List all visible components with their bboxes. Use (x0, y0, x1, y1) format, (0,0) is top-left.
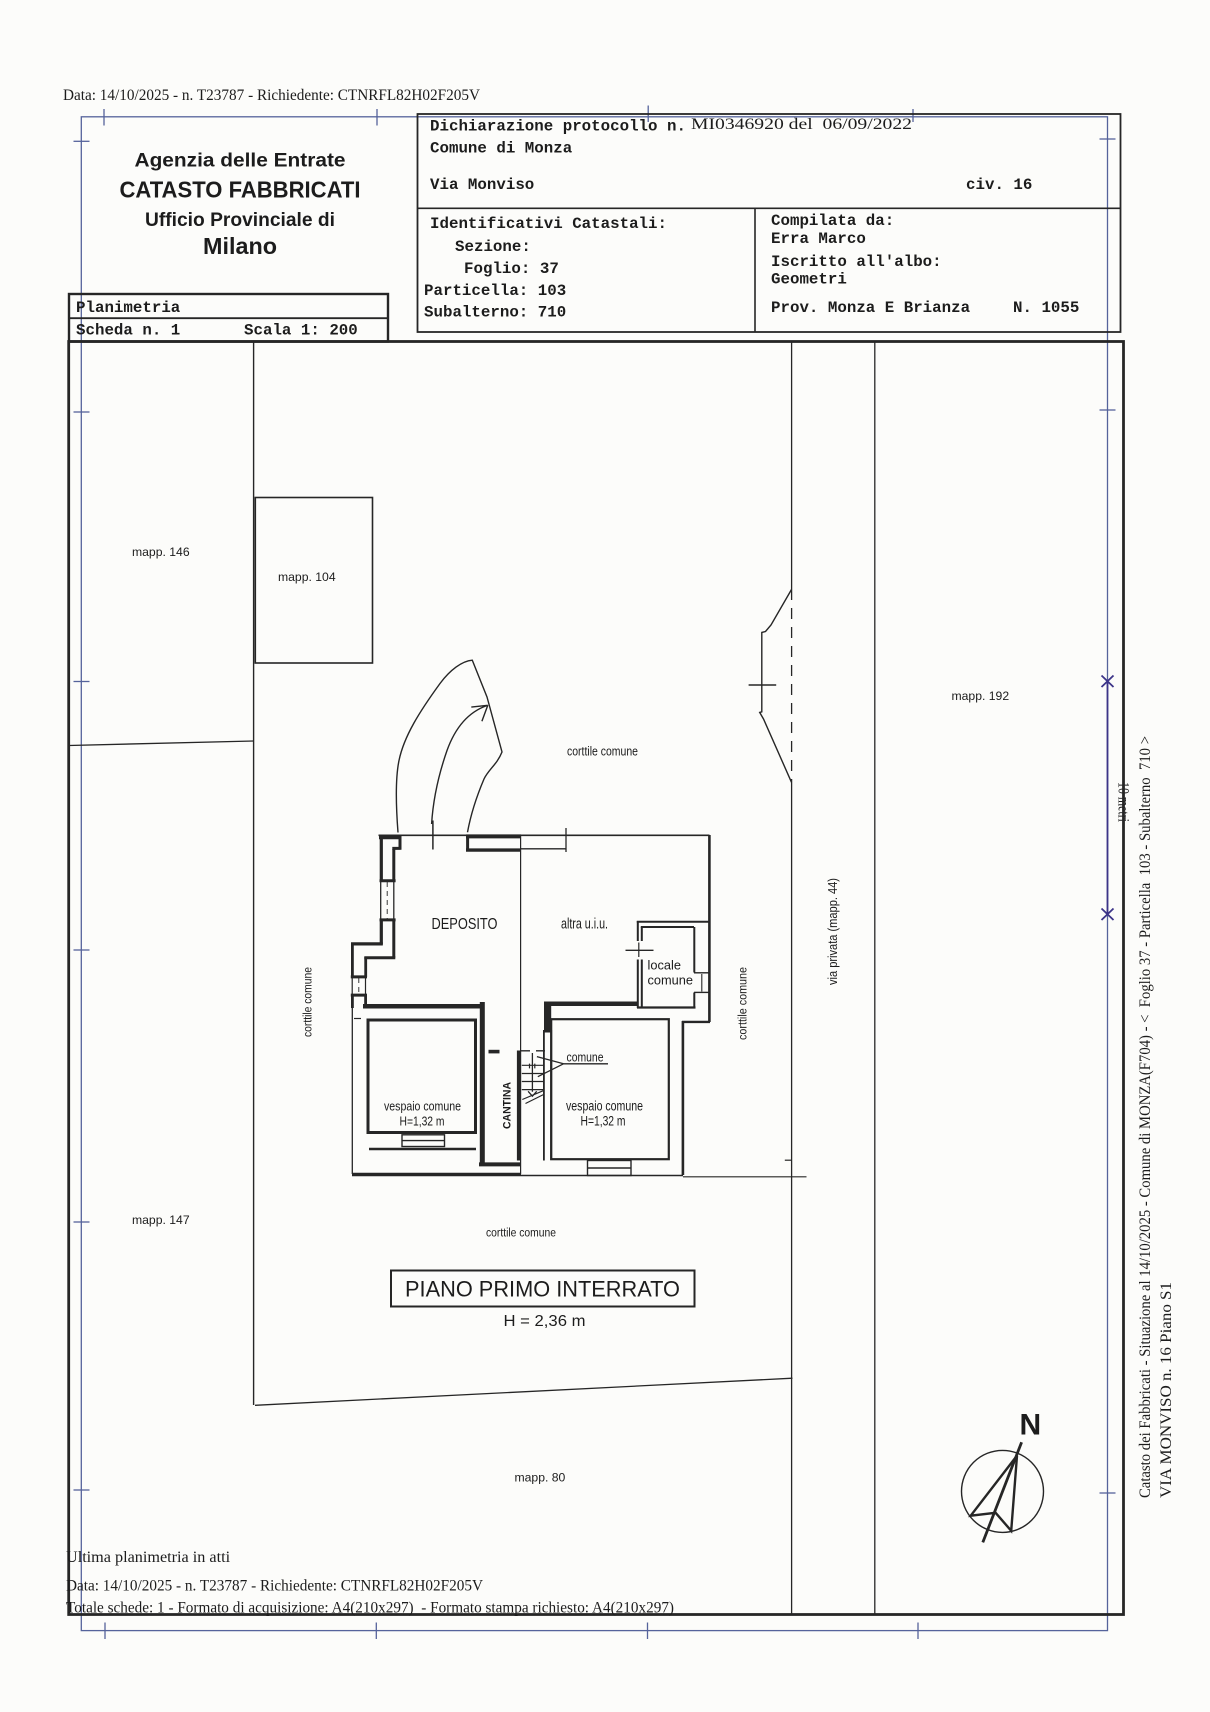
svg-text:CATASTO FABBRICATI: CATASTO FABBRICATI (120, 177, 361, 203)
svg-text:Prov. Monza E Brianza: Prov. Monza E Brianza (771, 299, 971, 317)
svg-text:Ultima planimetria in atti: Ultima planimetria in atti (66, 1548, 231, 1566)
svg-text:mapp. 80: mapp. 80 (515, 1471, 566, 1485)
svg-text:Scheda n. 1: Scheda n. 1 (76, 322, 180, 340)
svg-text:Geometri: Geometri (771, 271, 847, 289)
svg-text:mapp. 147: mapp. 147 (132, 1213, 190, 1227)
svg-text:Scala 1: 200: Scala 1: 200 (244, 322, 358, 340)
svg-text:CANTINA: CANTINA (502, 1082, 514, 1129)
svg-text:mapp. 146: mapp. 146 (132, 545, 190, 559)
svg-text:vespaio comune: vespaio comune (384, 1099, 461, 1114)
svg-text:Iscritto all'albo:: Iscritto all'albo: (771, 253, 942, 271)
svg-text:via privata (mapp. 44): via privata (mapp. 44) (826, 878, 840, 985)
svg-text:Subalterno: 710: Subalterno: 710 (424, 304, 566, 322)
svg-text:Compilata da:: Compilata da: (771, 212, 894, 230)
svg-text:H=1,32 m: H=1,32 m (400, 1114, 445, 1129)
svg-text:vespaio comune: vespaio comune (566, 1099, 643, 1114)
svg-text:civ. 16: civ. 16 (966, 176, 1032, 194)
svg-text:comune: comune (648, 973, 694, 988)
svg-text:Particella: 103: Particella: 103 (424, 282, 566, 300)
svg-text:Catasto dei Fabbricati - Situa: Catasto dei Fabbricati - Situazione al 1… (1136, 736, 1154, 1498)
svg-text:Foglio: 37: Foglio: 37 (464, 260, 559, 278)
svg-text:altra u.i.u.: altra u.i.u. (561, 917, 608, 933)
svg-text:corttile comune: corttile comune (567, 744, 638, 759)
svg-text:Milano: Milano (203, 233, 277, 259)
svg-text:corttile comune: corttile comune (486, 1228, 556, 1240)
svg-text:Sezione:: Sezione: (455, 238, 531, 256)
svg-text:Agenzia delle Entrate: Agenzia delle Entrate (135, 150, 346, 172)
svg-text:H = 2,36 m: H = 2,36 m (504, 1313, 586, 1330)
svg-text:MI0346920 del 06/09/2022: MI0346920 del 06/09/2022 (691, 115, 912, 133)
svg-text:Identificativi Catastali:: Identificativi Catastali: (430, 215, 667, 233)
svg-text:corttile comune: corttile comune (303, 967, 315, 1037)
svg-text:Erra Marco: Erra Marco (771, 230, 866, 248)
svg-text:DEPOSITO: DEPOSITO (432, 916, 498, 933)
svg-text:VIA MONVISO n. 16 Piano S1: VIA MONVISO n. 16 Piano S1 (1157, 1282, 1175, 1498)
svg-text:Data: 14/10/2025 - n. T23787 -: Data: 14/10/2025 - n. T23787 - Richieden… (66, 1577, 483, 1595)
svg-text:Totale schede: 1 - Formato di: Totale schede: 1 - Formato di acquisizio… (66, 1599, 674, 1617)
svg-text:Data: 14/10/2025 - n. T23787 -: Data: 14/10/2025 - n. T23787 - Richieden… (63, 86, 480, 104)
svg-text:Dichiarazione protocollo n.: Dichiarazione protocollo n. (430, 118, 686, 136)
svg-text:H=1,32 m: H=1,32 m (581, 1114, 626, 1129)
svg-text:N: N (1020, 1409, 1042, 1442)
svg-text:locale: locale (648, 958, 681, 973)
svg-text:mapp. 104: mapp. 104 (278, 570, 336, 584)
svg-text:Comune di Monza: Comune di Monza (430, 140, 573, 158)
svg-text:Ufficio Provinciale di: Ufficio Provinciale di (145, 209, 335, 231)
svg-text:Via Monviso: Via Monviso (430, 176, 534, 194)
svg-text:comune: comune (567, 1050, 604, 1065)
svg-text:Planimetria: Planimetria (76, 299, 181, 317)
svg-text:mapp. 192: mapp. 192 (952, 689, 1010, 703)
svg-text:PIANO PRIMO INTERRATO: PIANO PRIMO INTERRATO (405, 1277, 680, 1302)
svg-text:corttile comune: corttile comune (738, 967, 750, 1040)
svg-text:N. 1055: N. 1055 (1013, 299, 1079, 317)
